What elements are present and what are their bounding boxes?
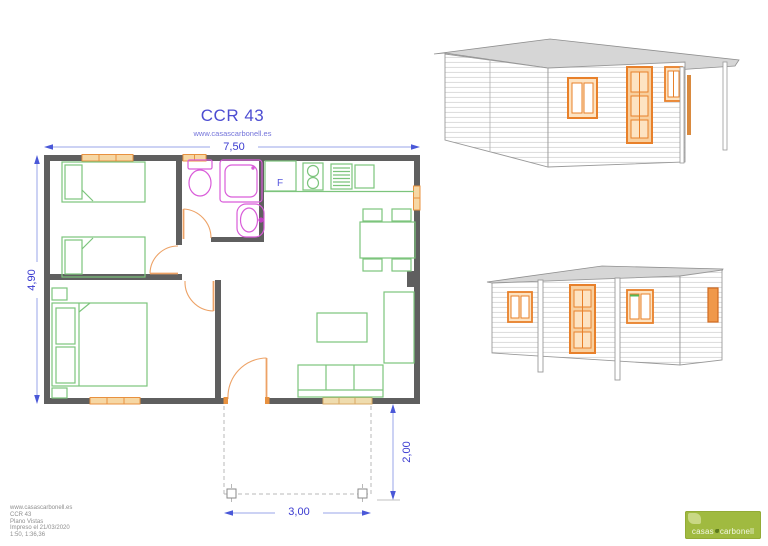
house-perspective-view-1 xyxy=(434,39,739,167)
side-window-icon xyxy=(708,288,718,322)
dimension-total-depth: 4,90 xyxy=(26,262,38,298)
gable-wall-icon xyxy=(445,54,548,167)
logo-text-right: carbonell xyxy=(720,527,754,536)
house-perspective-view-2 xyxy=(487,266,723,380)
info-line: Impreso el 21/03/2020 xyxy=(10,525,72,532)
info-line: Plano Vistas xyxy=(10,519,72,526)
window-icon xyxy=(627,290,653,323)
dimension-porch-depth: 2,00 xyxy=(401,435,413,469)
plan-sheet: F xyxy=(0,0,768,546)
logo-text-left: casas xyxy=(692,527,714,536)
bathroom-fixtures-icon xyxy=(188,160,264,237)
company-logo: casascarbonell xyxy=(685,511,761,539)
side-window-icon xyxy=(687,75,691,135)
leaf-icon xyxy=(688,513,701,524)
info-line: CCR 43 xyxy=(10,512,72,519)
window-icon xyxy=(665,67,682,101)
window-icon xyxy=(508,292,532,322)
title-block: www.casascarbonell.es CCR 43 Plano Vista… xyxy=(10,505,72,539)
window-icon xyxy=(568,78,597,118)
page-subtitle: www.casascarbonell.es xyxy=(160,129,305,138)
leaf-dot-icon xyxy=(715,529,719,533)
single-beds-icon xyxy=(62,162,145,277)
kitchen-counter-icon xyxy=(264,161,414,192)
floor-plan: F xyxy=(34,144,420,516)
door-icon xyxy=(627,67,652,143)
dimension-total-width: 7,50 xyxy=(210,141,258,153)
drawing-canvas: F xyxy=(0,0,768,546)
info-line: 1:50, 1:36,36 xyxy=(10,532,72,539)
page-title: CCR 43 xyxy=(160,106,305,126)
door-icon xyxy=(570,285,595,353)
double-bed-icon xyxy=(52,288,147,398)
walls-icon xyxy=(44,155,420,404)
porch-outline-icon xyxy=(224,406,371,503)
dimension-porch-width: 3,00 xyxy=(275,506,323,518)
info-line: www.casascarbonell.es xyxy=(10,505,72,512)
living-furniture-icon xyxy=(298,292,414,397)
dining-table-icon xyxy=(360,209,415,271)
fridge-label: F xyxy=(277,178,283,189)
logo-text: casascarbonell xyxy=(685,527,761,536)
